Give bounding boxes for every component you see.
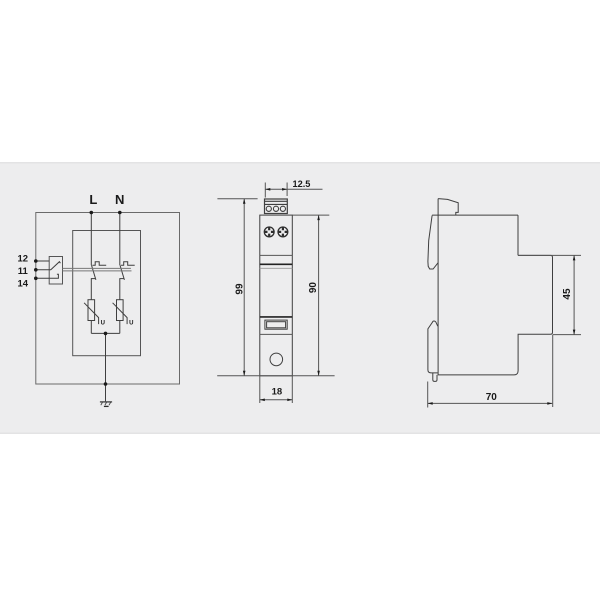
svg-text:90: 90 bbox=[308, 282, 319, 294]
svg-text:12: 12 bbox=[18, 254, 29, 265]
svg-text:14: 14 bbox=[18, 279, 29, 290]
svg-text:U: U bbox=[101, 321, 105, 327]
svg-text:L: L bbox=[89, 192, 97, 207]
svg-text:45: 45 bbox=[562, 288, 573, 300]
svg-text:18: 18 bbox=[272, 387, 283, 398]
svg-text:70: 70 bbox=[486, 392, 498, 403]
svg-text:N: N bbox=[115, 192, 124, 207]
svg-text:11: 11 bbox=[18, 266, 29, 277]
svg-text:99: 99 bbox=[235, 283, 246, 295]
svg-text:12.5: 12.5 bbox=[293, 179, 311, 189]
svg-text:U: U bbox=[129, 321, 133, 327]
